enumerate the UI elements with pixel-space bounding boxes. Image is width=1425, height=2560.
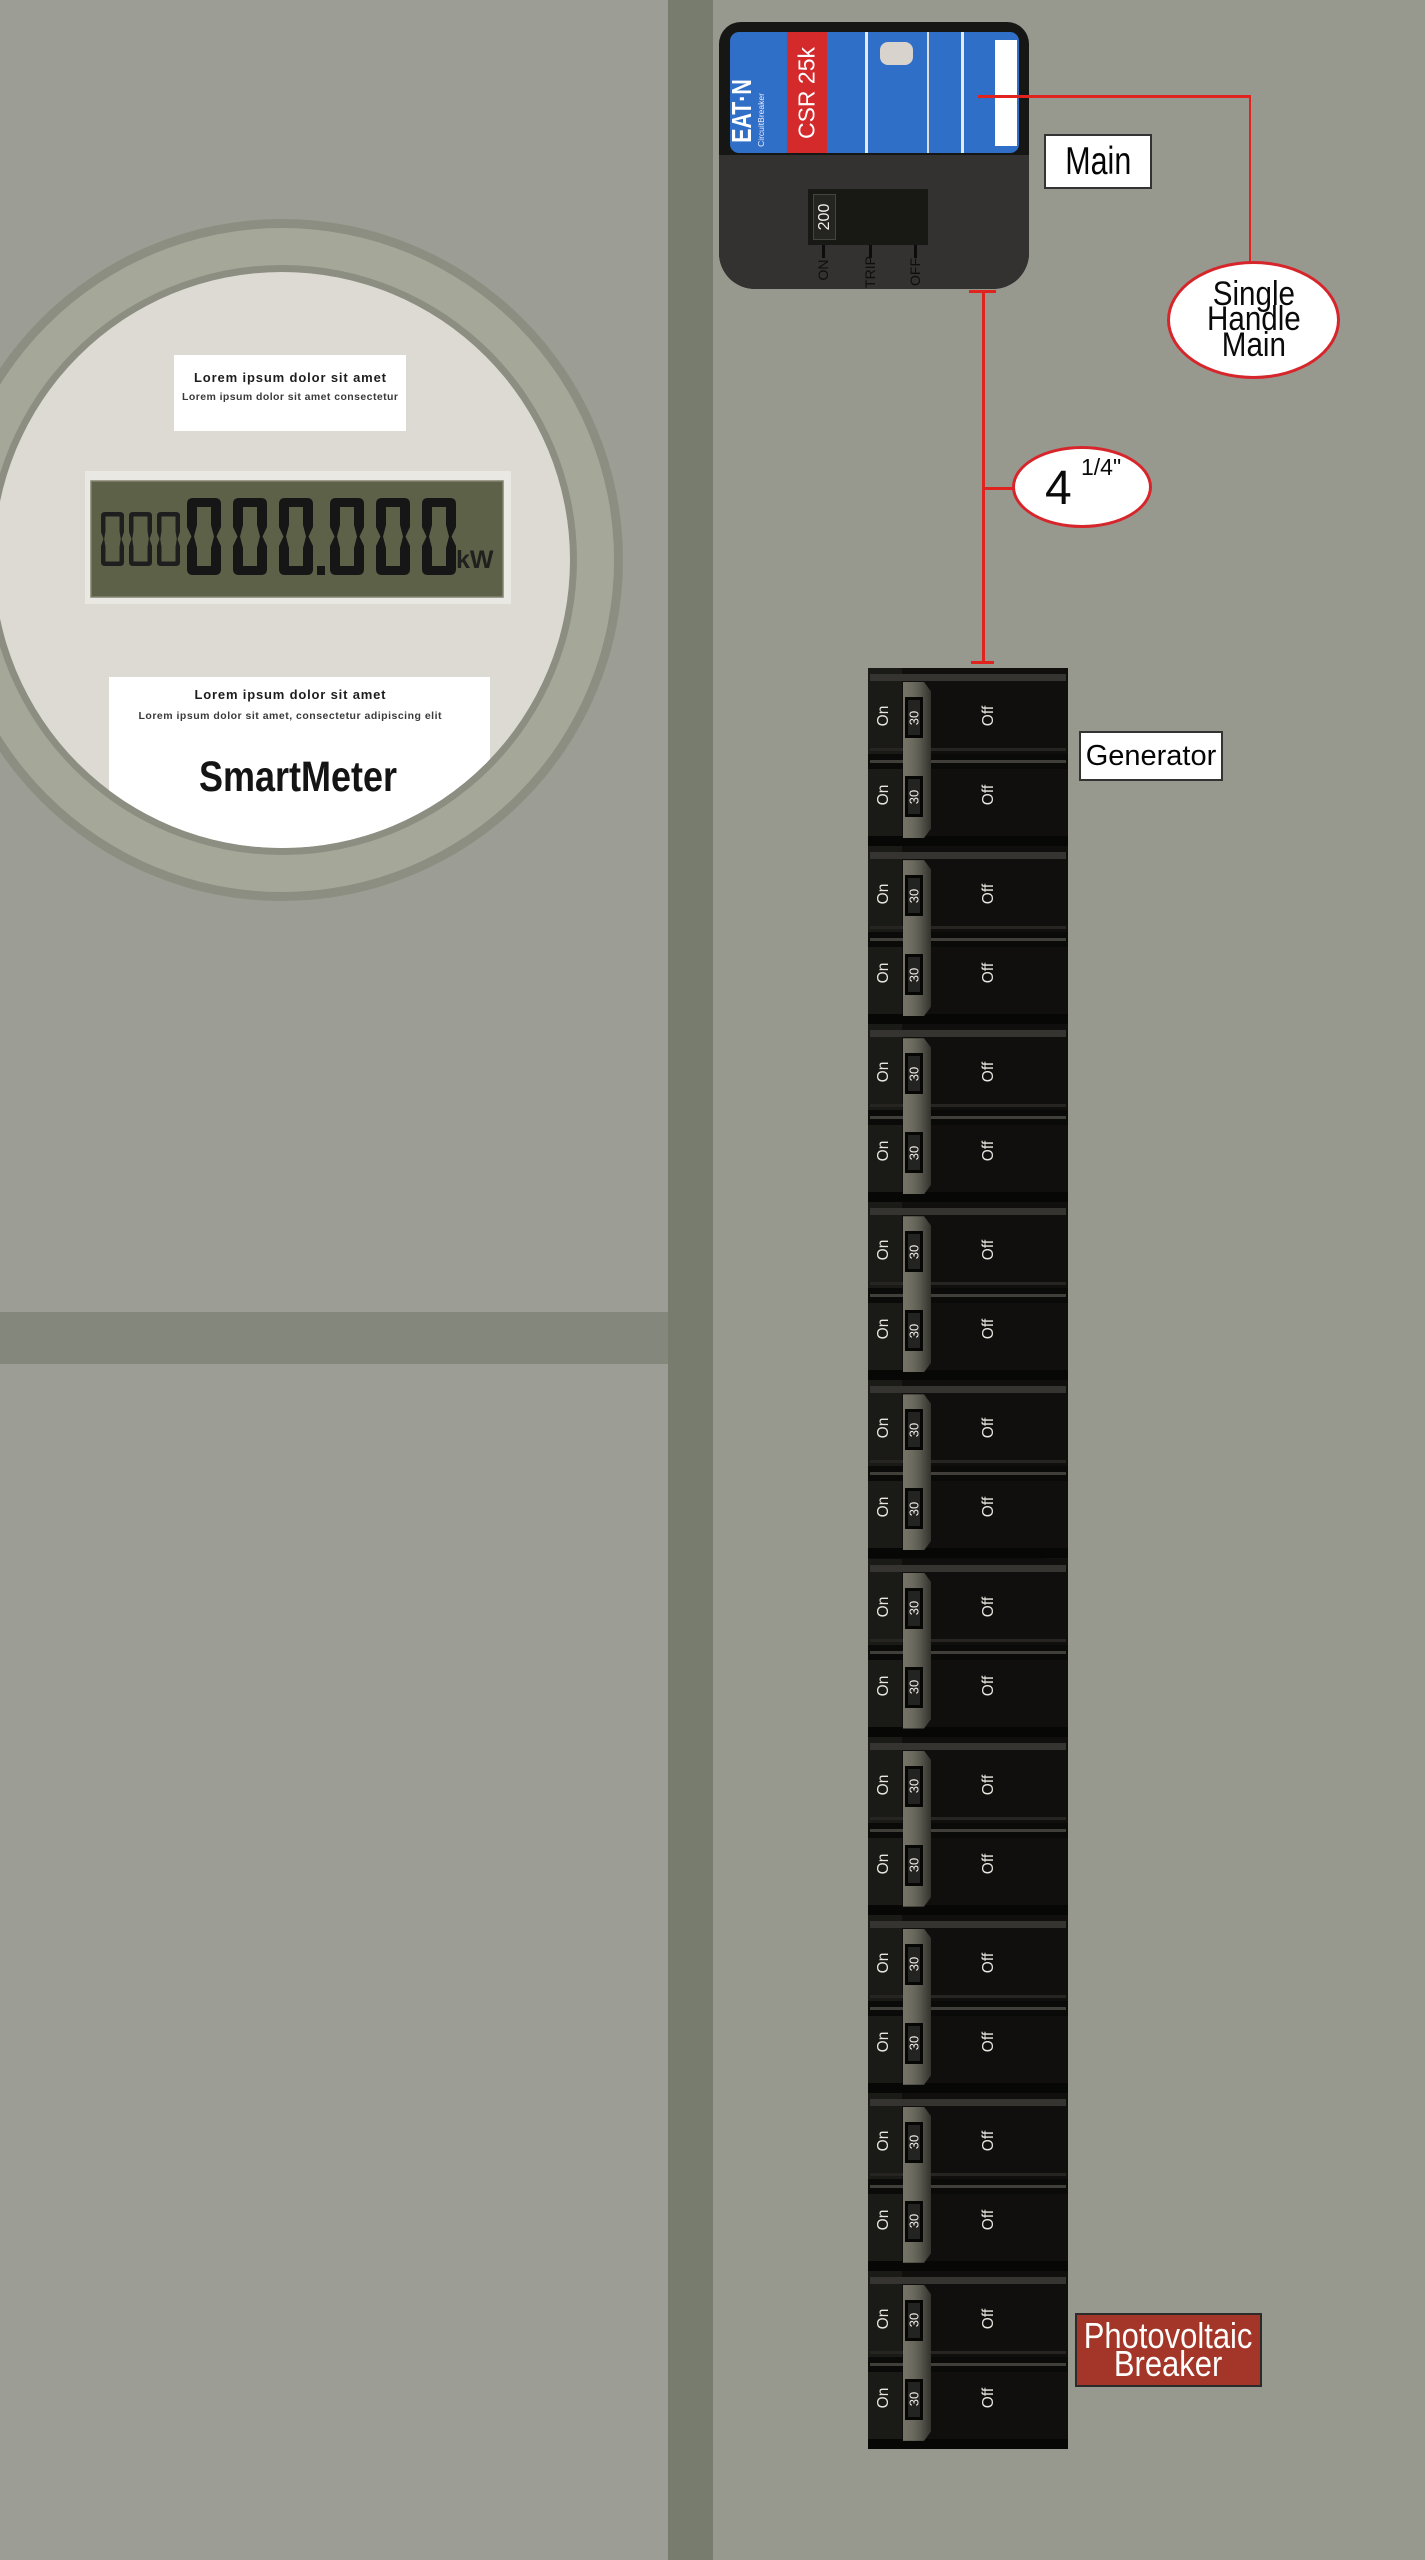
svg-text:Lorem ipsum dolor sit amet, co: Lorem ipsum dolor sit amet, consectetur …	[139, 710, 443, 722]
svg-text:Lorem ipsum dolor sit amet con: Lorem ipsum dolor sit amet consectetur	[182, 391, 398, 403]
svg-text:kW: kW	[456, 546, 494, 574]
svg-text:SmartMeter: SmartMeter	[199, 753, 397, 801]
svg-text:Lorem ipsum dolor sit amet: Lorem ipsum dolor sit amet	[195, 687, 387, 702]
svg-text:Lorem ipsum dolor sit amet: Lorem ipsum dolor sit amet	[194, 370, 387, 385]
